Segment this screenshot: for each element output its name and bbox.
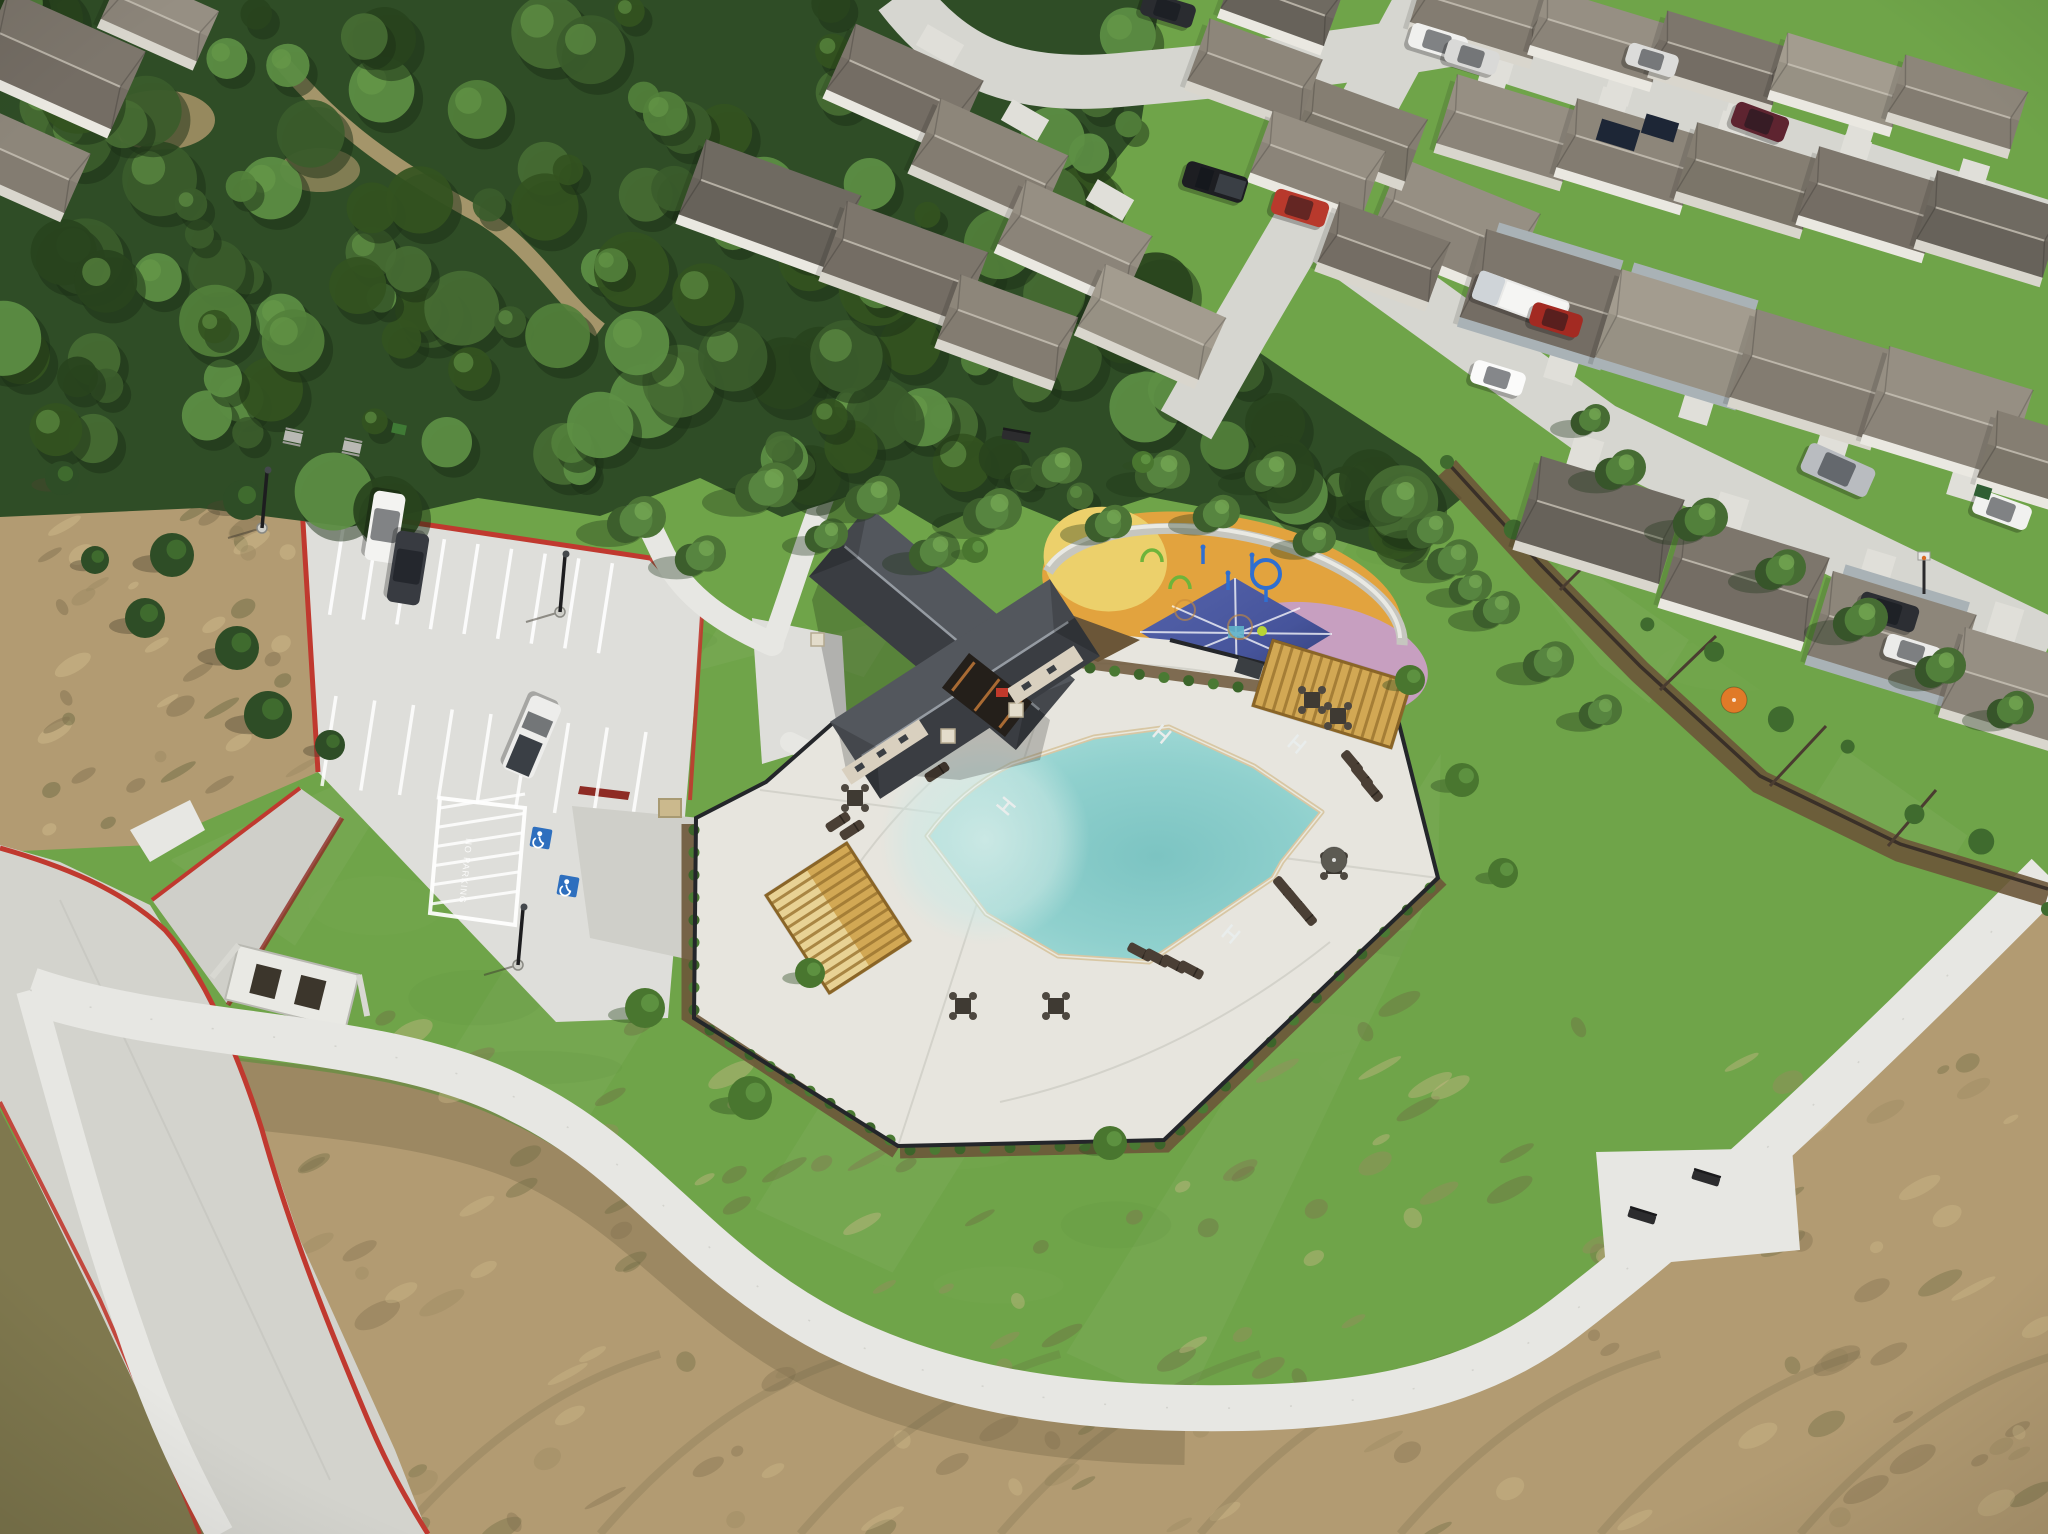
aerial-photo: Aerial drone photograph of a master-plan…: [0, 0, 2048, 1534]
aerial-photo-stage: Aerial drone photograph of a master-plan…: [0, 0, 2048, 1534]
vignette: [0, 0, 2048, 1534]
